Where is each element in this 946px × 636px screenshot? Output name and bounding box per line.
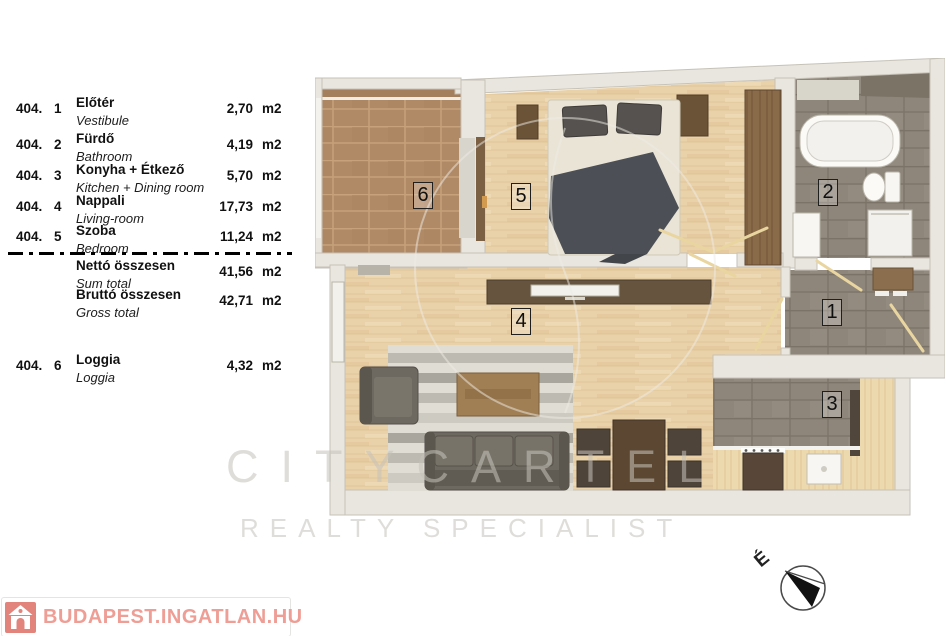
loggia-grout-line bbox=[322, 97, 461, 100]
loggia-door-frame bbox=[476, 137, 485, 241]
stove-knob bbox=[753, 449, 756, 452]
pillow-left bbox=[562, 105, 608, 137]
stove-knob bbox=[777, 449, 780, 452]
portal-logo: BUDAPEST.INGATLAN.HU bbox=[1, 597, 291, 636]
wall-stub bbox=[358, 265, 390, 275]
tv bbox=[531, 285, 619, 296]
loggia-top-wall bbox=[315, 78, 461, 89]
area-unit: m2 bbox=[253, 286, 292, 322]
room-name-hu: Szoba bbox=[76, 223, 116, 238]
row-code: 404. bbox=[16, 351, 54, 387]
toilet-tank bbox=[885, 172, 900, 202]
totals-divider-line bbox=[8, 252, 292, 255]
counter-backsplash bbox=[713, 446, 860, 450]
room-name-en: Loggia bbox=[76, 370, 115, 385]
stove bbox=[743, 453, 783, 490]
room-number-3: 3 bbox=[822, 391, 842, 418]
area-unit: m2 bbox=[253, 94, 292, 130]
loggia-edge-tiles bbox=[322, 89, 461, 97]
hall-kitchen-wall bbox=[713, 355, 945, 378]
loggia-window bbox=[316, 98, 321, 238]
hall-shelf-detail-b bbox=[893, 291, 907, 296]
room-number-4: 4 bbox=[511, 308, 531, 335]
legend-row-vestibule: 404. 1 Előtér Vestibule 2,70 m2 bbox=[16, 94, 292, 130]
row-code: 404. bbox=[16, 94, 54, 130]
house-icon bbox=[5, 602, 36, 633]
legend-row-loggia: 404. 6 Loggia Loggia 4,32 m2 bbox=[16, 351, 292, 387]
watermark-tagline: REALTY SPECIALIST bbox=[240, 513, 683, 544]
bottom-outer-wall bbox=[330, 490, 910, 515]
stove-knob bbox=[745, 449, 748, 452]
area-unit: m2 bbox=[253, 351, 292, 387]
loggia-glass-door bbox=[459, 138, 475, 238]
living-hall-wall-a bbox=[781, 267, 790, 297]
room-name-en: Vestibule bbox=[76, 113, 129, 128]
floorplan-page: 404. 1 Előtér Vestibule 2,70 m2 404. 2 F… bbox=[0, 0, 946, 636]
room-area: 2,70 bbox=[205, 94, 253, 130]
lower-right-wall bbox=[895, 378, 910, 500]
total-area: 42,71 bbox=[205, 286, 253, 322]
coffee-table-groove bbox=[465, 389, 531, 399]
bathroom-mat bbox=[797, 80, 859, 100]
row-index: 6 bbox=[54, 351, 76, 387]
room-number-2: 2 bbox=[818, 179, 838, 206]
wardrobe bbox=[745, 90, 781, 265]
armchair-back bbox=[360, 367, 372, 424]
bathtub-inner bbox=[807, 121, 893, 161]
sink-drain bbox=[821, 466, 827, 472]
total-name-en: Gross total bbox=[76, 305, 139, 320]
armchair-seat bbox=[374, 377, 412, 417]
room-area: 4,32 bbox=[205, 351, 253, 387]
bath-hall-wall-a bbox=[795, 258, 817, 270]
living-window bbox=[332, 282, 344, 362]
door-handle bbox=[482, 196, 487, 208]
tv-stand bbox=[565, 297, 585, 300]
room-name-hu: Loggia bbox=[76, 352, 120, 367]
room-name-hu: Fürdő bbox=[76, 131, 114, 146]
right-outer-wall bbox=[930, 58, 945, 360]
kitchen-side-floor bbox=[860, 378, 895, 490]
portal-logo-text: BUDAPEST.INGATLAN.HU bbox=[43, 606, 303, 629]
shower-washer bbox=[868, 210, 912, 256]
room-name-hu: Előtér bbox=[76, 95, 114, 110]
hall-shelf-detail-a bbox=[875, 291, 889, 296]
room-number-1: 1 bbox=[822, 299, 842, 326]
toilet-bowl bbox=[863, 173, 885, 201]
room-name-hu: Nappali bbox=[76, 193, 125, 208]
room-number-5: 5 bbox=[511, 183, 531, 210]
total-name-hu: Nettó összesen bbox=[76, 258, 175, 273]
stove-knob bbox=[769, 449, 772, 452]
room-number-6: 6 bbox=[413, 182, 433, 209]
stove-knob bbox=[761, 449, 764, 452]
nightstand-right bbox=[677, 95, 708, 136]
room-name-hu: Konyha + Étkező bbox=[76, 162, 184, 177]
hall-shelf bbox=[873, 268, 913, 290]
row-index: 1 bbox=[54, 94, 76, 130]
loggia-floor bbox=[322, 89, 461, 253]
legend-row-gross-total: Bruttó összesen Gross total 42,71 m2 bbox=[16, 286, 292, 322]
bathroom-sink bbox=[793, 213, 820, 257]
watermark-brand: CITYCARTEL bbox=[226, 441, 725, 493]
total-name-hu: Bruttó összesen bbox=[76, 287, 181, 302]
